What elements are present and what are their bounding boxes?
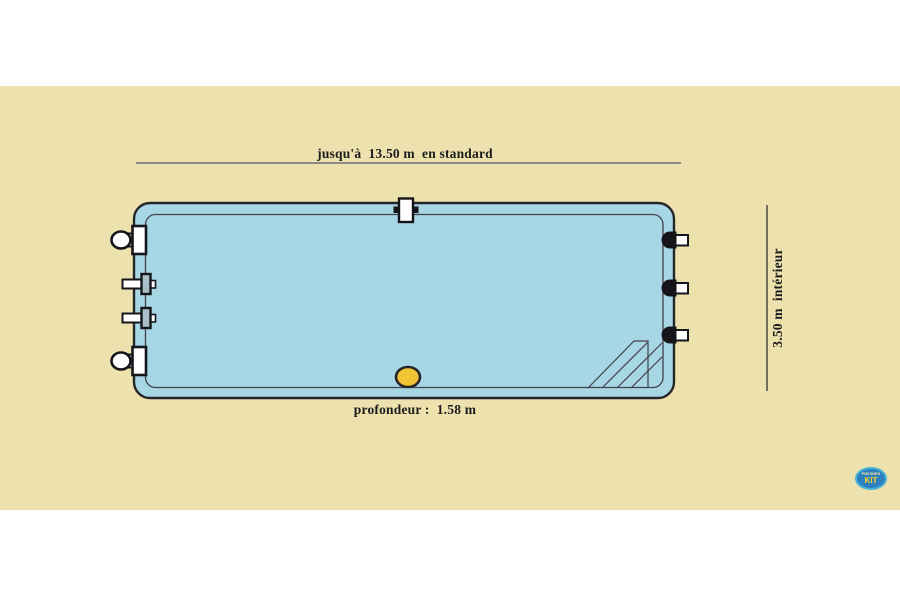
logo-text-bottom: KIT [865,477,878,485]
wall-fitting-icon [662,232,689,249]
pool-plan-page: jusqu'à 13.50 m en standard 3.50 m intér… [0,0,900,600]
wall-fitting-icon [662,280,689,297]
wall-fitting-icon [662,327,689,344]
depth-label: profondeur : 1.58 m [300,402,530,418]
projector-light-icon [112,226,147,254]
pool-diagram [0,0,900,600]
main-drain-icon [396,367,420,387]
side-dimension-label: 3.50 m intérieur [770,248,786,347]
top-dimension-label: jusqu'à 13.50 m en standard [130,146,680,162]
piscines-kit-logo: PISCINES KIT [855,467,887,490]
projector-light-icon [112,347,147,375]
